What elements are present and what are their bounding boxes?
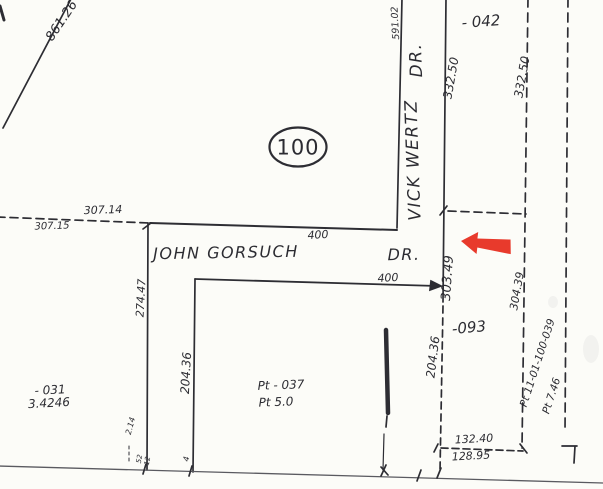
- dim-307-14: 307.14: [84, 204, 123, 216]
- parcel-031-acreage: 3.4246: [28, 396, 71, 410]
- scan-smudge: [583, 335, 599, 363]
- parcel-inner-line: [193, 279, 195, 472]
- street-john-gorsuch-name: JOHN GORSUCH: [153, 244, 299, 263]
- dim-128-95: 128.95: [451, 450, 490, 463]
- parcel-093-label: -093: [451, 319, 486, 337]
- parcel-heavy-line-dash: [386, 416, 387, 427]
- parcel-042-label: - 042: [461, 13, 501, 31]
- highlight-arrow-marker: [460, 230, 513, 258]
- street-vick-wertz-suffix: DR.: [408, 42, 426, 77]
- street-john-gorsuch-suffix: DR.: [387, 247, 420, 264]
- dim-591-02: 591.02: [390, 6, 401, 40]
- parcel-thin-line: [383, 434, 384, 470]
- tick-mark: [143, 464, 146, 474]
- bottom-boundary-line: [0, 466, 603, 483]
- dim-274-47: 274.47: [135, 278, 148, 317]
- parcel-037-acreage: Pt 5.0: [258, 395, 293, 408]
- street-vick-wertz-name: VICK WERTZ: [403, 99, 424, 221]
- east-dashed-line-b: [565, 0, 568, 432]
- tick-mark: [437, 468, 441, 478]
- scan-edge-artifact: [0, 6, 4, 20]
- scan-smudge: [548, 296, 558, 308]
- tick-mark: [417, 470, 421, 481]
- dim-400-a: 400: [307, 229, 329, 241]
- tick-mark: [143, 223, 151, 229]
- dim-307-15: 307.15: [34, 221, 69, 232]
- parcel-037-label: Pt - 037: [257, 378, 304, 392]
- parcel-west-line: [147, 223, 148, 470]
- plat-linework: [0, 0, 603, 489]
- dim-303-49: 303.49: [440, 255, 456, 301]
- plat-map: 861.26 591.02 DR. VICK WERTZ - 042 332.5…: [0, 0, 603, 489]
- parcel-heavy-line: [386, 330, 388, 413]
- john-gorsuch-south-line: [195, 279, 438, 286]
- john-gorsuch-north-line: [150, 223, 397, 230]
- dim-400-b: 400: [377, 272, 399, 284]
- lot093-north-dashed-line: [448, 211, 526, 214]
- john-gorsuch-north-dashed-line: [0, 217, 150, 223]
- dim-132-40: 132.40: [454, 433, 493, 446]
- dim-204-36-a: 204.36: [179, 352, 193, 395]
- parcel-100-label: 100: [276, 138, 319, 159]
- east-corner-bracket: [562, 446, 577, 463]
- vick-wertz-east-dashed-line: [440, 306, 443, 471]
- tick-mark: [434, 444, 438, 452]
